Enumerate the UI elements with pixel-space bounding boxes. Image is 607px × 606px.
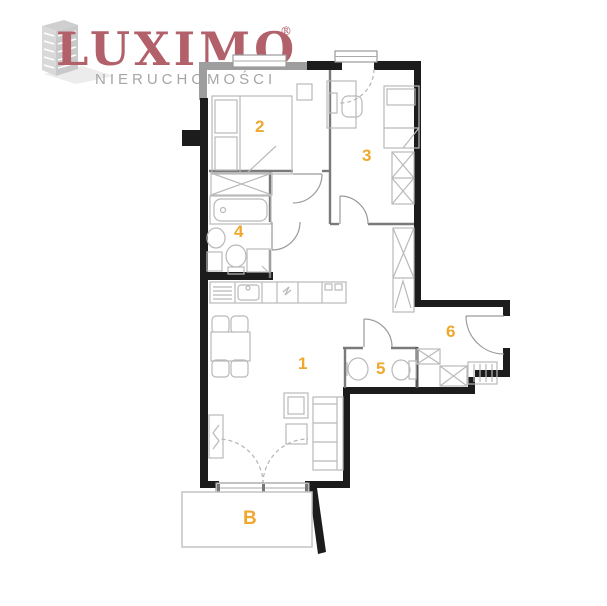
pillow [387,89,415,105]
window-swing-arc [340,69,374,103]
door-room-3 [340,196,368,224]
bathroom-cabinet [207,252,222,271]
room-label-1: 1 [298,354,307,374]
single-bed [384,86,419,148]
pillow [215,100,237,133]
room-6-furniture [417,349,497,386]
bathtub [210,196,271,224]
room-label-3: 3 [362,146,371,166]
chair [212,360,229,377]
dining-set [211,316,250,377]
wall-stub [182,130,200,146]
desk-chair [342,96,362,117]
stove [283,287,291,295]
floor-plan-page: LUXIMO ® NIERUCHOMOŚCI [0,0,607,606]
living-area-furniture [209,393,343,470]
dish-drainer [213,287,232,299]
dining-table [211,332,250,361]
toilet [226,245,246,267]
structural-walls [182,61,510,554]
washing-machine [247,249,270,272]
chair [231,316,248,333]
bathroom-sink [207,228,225,248]
corridor-wardrobe [393,228,414,312]
chair [212,316,229,333]
entrance-door [466,316,504,354]
windows [233,51,377,103]
room-label-4: 4 [234,222,243,242]
nightstand [297,84,312,100]
balcony-label: B [243,508,257,530]
doors [216,174,504,493]
room-label-5: 5 [376,359,385,379]
door-room-5 [364,319,392,347]
floor-plan [0,0,607,606]
door-room-4 [272,222,300,250]
door-room-2 [293,174,322,203]
room-label-6: 6 [446,322,455,342]
fridge [325,284,332,290]
chair [231,360,248,377]
double-bed [212,96,292,174]
wc-sink [348,358,368,380]
kitchen-counter [210,282,346,303]
wc-toilet [392,360,410,380]
room-label-2: 2 [255,117,264,137]
balcony-door [216,439,309,493]
pillow [215,137,237,170]
kitchen-sink [238,285,259,300]
room-3-furniture [327,81,419,204]
sofa [313,397,343,470]
